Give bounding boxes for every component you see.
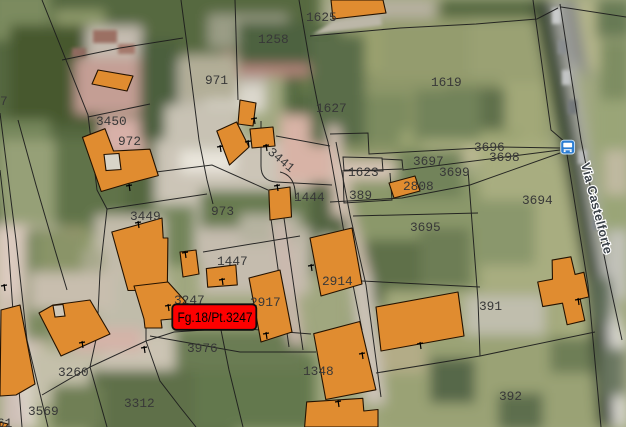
svg-text:3695: 3695 [410, 220, 441, 235]
svg-text:3260: 3260 [58, 365, 89, 380]
svg-text:3450: 3450 [96, 114, 127, 129]
svg-text:1627: 1627 [316, 101, 347, 116]
svg-text:389: 389 [349, 188, 372, 203]
svg-text:3694: 3694 [522, 193, 553, 208]
svg-text:1348: 1348 [303, 364, 334, 379]
svg-text:3699: 3699 [439, 165, 470, 180]
svg-text:1258: 1258 [258, 32, 289, 47]
svg-text:3449: 3449 [130, 209, 161, 224]
svg-text:1447: 1447 [217, 254, 248, 269]
svg-text:1623: 1623 [348, 165, 379, 180]
svg-text:1444: 1444 [294, 190, 325, 205]
svg-text:3976: 3976 [187, 341, 218, 356]
svg-text:3698: 3698 [489, 150, 520, 165]
svg-text:971: 971 [205, 73, 228, 88]
svg-text:2808: 2808 [403, 179, 434, 194]
svg-text:3569: 3569 [28, 404, 59, 419]
svg-text:1625: 1625 [306, 10, 337, 25]
svg-text:3312: 3312 [124, 396, 155, 411]
svg-text:973: 973 [211, 204, 234, 219]
svg-text:Fg.18/Pt.3247: Fg.18/Pt.3247 [178, 310, 253, 325]
svg-text:391: 391 [479, 299, 502, 314]
svg-text:7: 7 [0, 94, 8, 109]
svg-text:1619: 1619 [431, 75, 462, 90]
svg-text:2914: 2914 [322, 274, 353, 289]
svg-text:392: 392 [499, 389, 522, 404]
svg-text:972: 972 [118, 134, 141, 149]
svg-text:61: 61 [0, 416, 13, 427]
